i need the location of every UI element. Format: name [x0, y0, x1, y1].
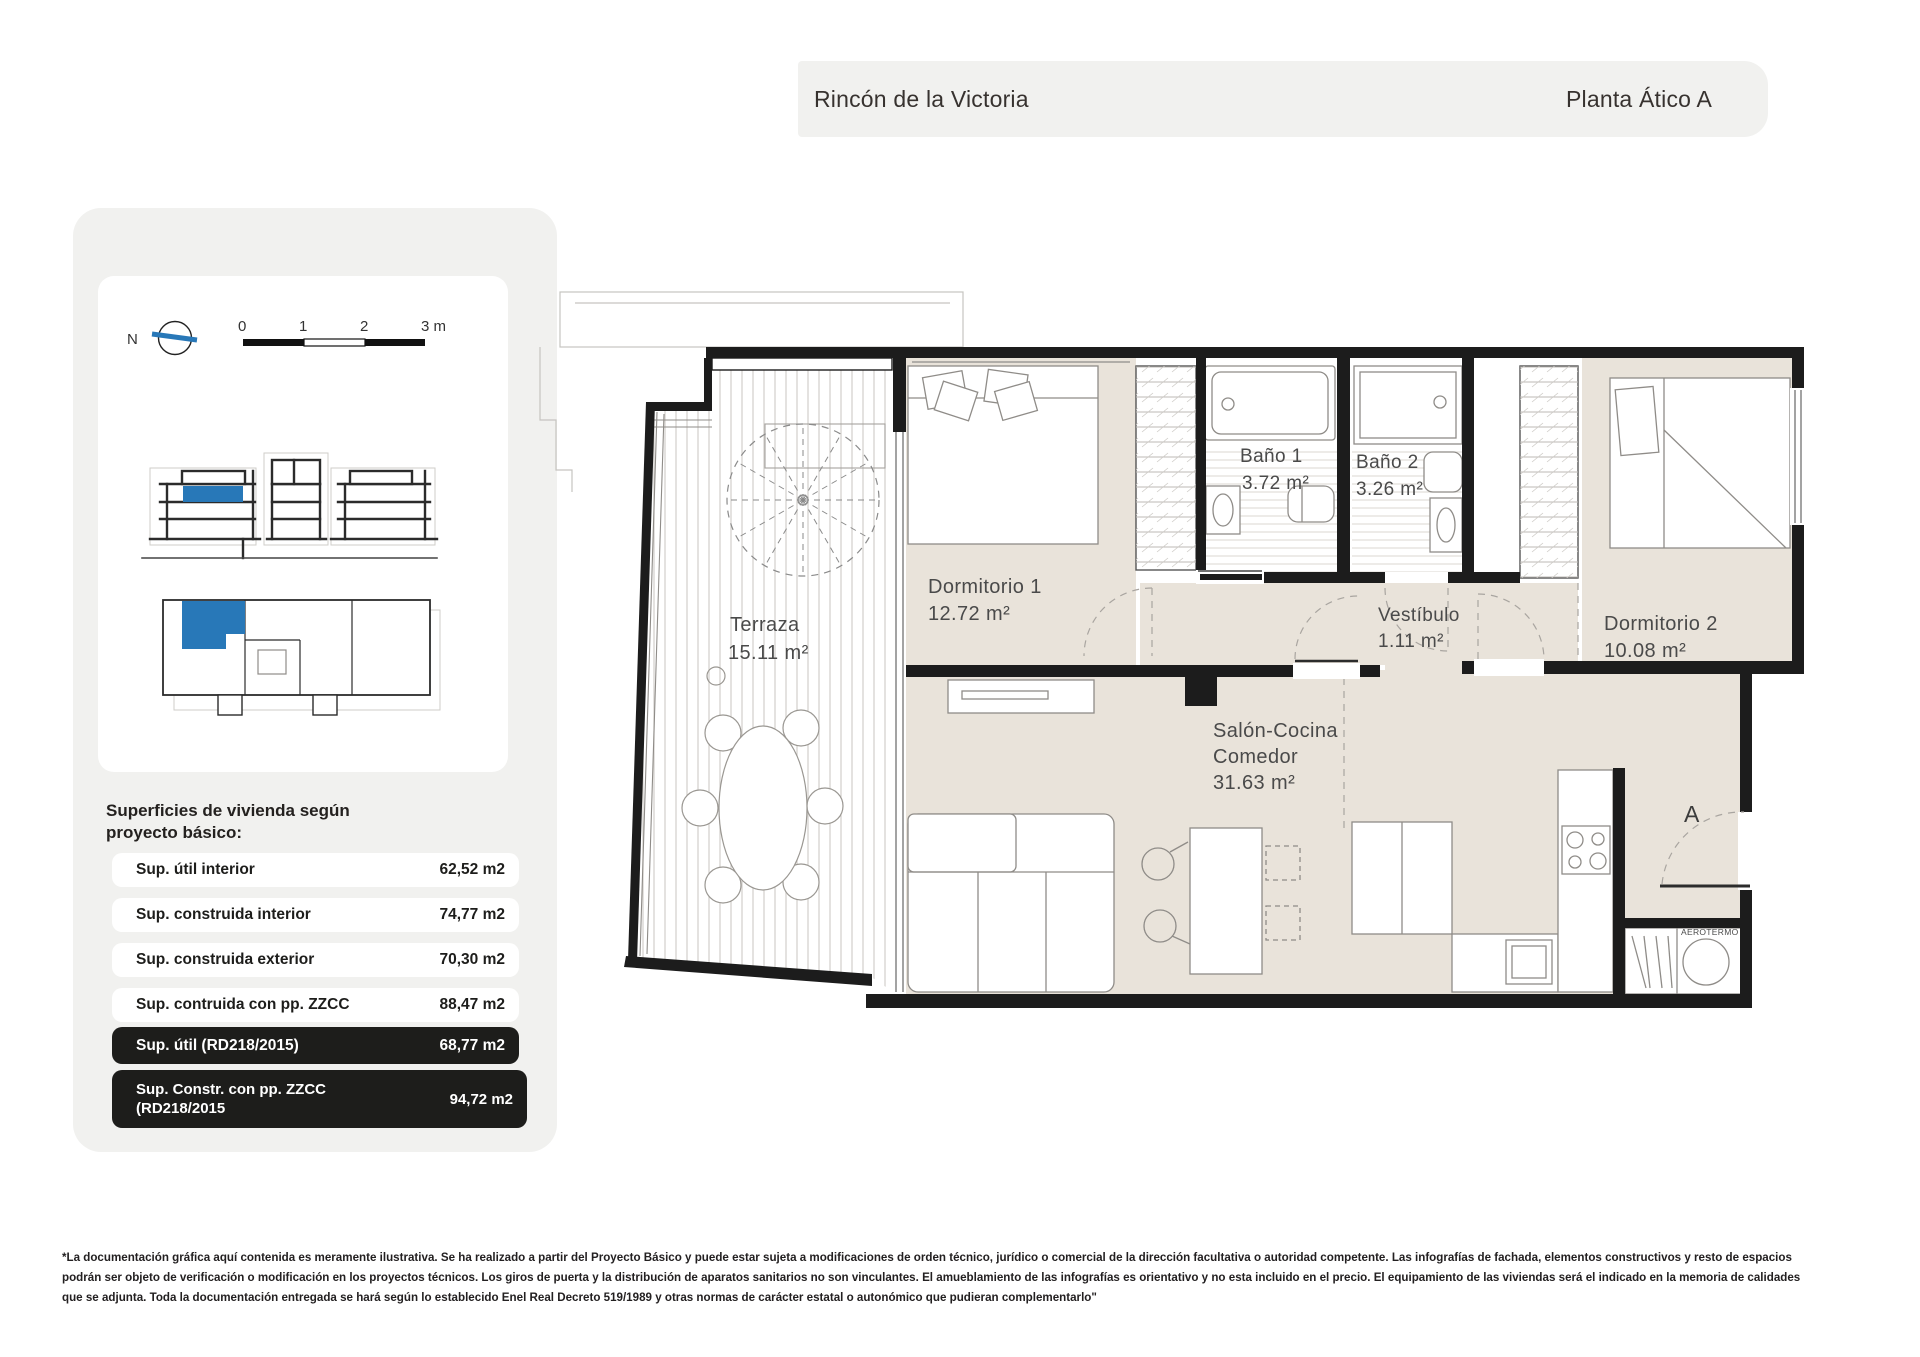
label-salon-line2: Comedor — [1213, 746, 1298, 768]
label-salon: Salón-Cocina — [1213, 720, 1338, 742]
sofa — [908, 814, 1114, 992]
disclaimer-line3: que se adjunta. Toda la documentación en… — [62, 1288, 1920, 1308]
dormitorio2-door-gap — [1474, 659, 1544, 676]
surface-row-label-line1: Sup. Constr. con pp. ZZCC — [136, 1081, 326, 1098]
surface-row-label-line2: (RD218/2015 — [136, 1100, 225, 1117]
floor-plan: Terraza 15.11 m² Dormitorio 1 12.72 m² B… — [525, 275, 1835, 1020]
dormitorio2-window — [1790, 388, 1806, 525]
surface-row-label: Sup. construida interior — [136, 906, 311, 924]
sink2-icon — [1430, 498, 1462, 552]
label-dormitorio1-area: 12.72 m² — [928, 603, 1010, 625]
label-bano1: Baño 1 — [1240, 446, 1303, 467]
terrace-glass-door — [893, 432, 906, 992]
compass-north-label: N — [127, 331, 138, 348]
header-bar: Rincón de la Victoria Planta Ático A — [798, 61, 1768, 137]
disclaimer: *La documentación gráfica aquí contenida… — [62, 1248, 1920, 1308]
label-bano1-area: 3.72 m² — [1242, 473, 1309, 494]
key-plan — [163, 600, 440, 715]
label-terraza: Terraza — [730, 614, 800, 636]
label-vestibulo-area: 1.11 m² — [1378, 631, 1444, 652]
surface-row-label: Sup. útil (RD218/2015) — [136, 1037, 299, 1055]
surface-row-value: 62,52 m2 — [440, 861, 506, 879]
label-vestibulo: Vestíbulo — [1378, 605, 1460, 626]
surface-row-util-rd218: Sup. útil (RD218/2015) 68,77 m2 — [112, 1027, 519, 1064]
bed-dormitorio2 — [1610, 378, 1790, 548]
shower-icon — [1354, 366, 1462, 444]
scale-seg-2 — [304, 339, 365, 346]
aerotermo-room — [1625, 928, 1742, 994]
disclaimer-line1: *La documentación gráfica aquí contenida… — [62, 1248, 1920, 1268]
surface-row-constr-rd218: Sup. Constr. con pp. ZZCC (RD218/2015 94… — [112, 1070, 527, 1128]
toilet2-icon — [1424, 452, 1462, 492]
surface-row-value: 88,47 m2 — [440, 996, 506, 1014]
surface-row-label: Sup. útil interior — [136, 861, 255, 879]
label-dormitorio1: Dormitorio 1 — [928, 576, 1042, 598]
label-bano2: Baño 2 — [1356, 452, 1419, 473]
bathtub-icon — [1205, 366, 1335, 440]
surface-row-value: 70,30 m2 — [440, 951, 506, 969]
label-terraza-area: 15.11 m² — [728, 642, 809, 664]
aerotermo-label: AEROTERMO — [1681, 927, 1739, 937]
surfaces-title-line1: Superficies de vivienda según — [106, 800, 466, 822]
surfaces-title-line2: proyecto básico: — [106, 822, 466, 844]
surface-row-construida-zzcc: Sup. contruida con pp. ZZCC 88,47 m2 — [112, 988, 519, 1022]
label-salon-area: 31.63 m² — [1213, 772, 1295, 794]
surface-row-value: 94,72 m2 — [450, 1091, 513, 1108]
bed-dormitorio1 — [908, 366, 1098, 544]
surface-row-label: Sup. contruida con pp. ZZCC — [136, 996, 350, 1014]
disclaimer-line2: podrán ser objeto de verificación o modi… — [62, 1268, 1920, 1288]
label-dormitorio2: Dormitorio 2 — [1604, 613, 1718, 635]
project-title: Rincón de la Victoria — [814, 86, 1029, 113]
label-bano2-area: 3.26 m² — [1356, 479, 1423, 500]
surfaces-title: Superficies de vivienda según proyecto b… — [106, 800, 466, 844]
hall-floor — [1140, 583, 1578, 665]
surface-row-construida-interior: Sup. construida interior 74,77 m2 — [112, 898, 519, 932]
outdoor-table — [719, 726, 807, 890]
entrance-letter: A — [1684, 801, 1700, 827]
locator-graphics: N 0 1 2 3 m — [98, 276, 508, 772]
label-dormitorio2-area: 10.08 m² — [1604, 640, 1686, 662]
compass: N — [127, 322, 197, 355]
tv-console — [948, 680, 1094, 713]
surface-row-util-interior: Sup. útil interior 62,52 m2 — [112, 853, 519, 887]
scale-seg-3 — [365, 339, 425, 346]
scale-seg-1 — [243, 339, 304, 346]
scale-bar: 0 1 2 3 m — [238, 318, 446, 346]
surface-row-value: 68,77 m2 — [440, 1037, 506, 1055]
scale-tick-0: 0 — [238, 318, 246, 335]
terrace-parapet — [712, 358, 892, 370]
scale-tick-2: 2 — [360, 318, 368, 335]
scale-tick-3: 3 m — [421, 318, 446, 335]
bano1-pocket-door — [1196, 570, 1264, 584]
hall-door — [1293, 661, 1360, 679]
scale-tick-1: 1 — [299, 318, 307, 335]
building-elevation — [142, 453, 437, 558]
highlighted-unit-elevation — [183, 486, 243, 502]
surface-row-label: Sup. construida exterior — [136, 951, 314, 969]
surface-row-label: Sup. Constr. con pp. ZZCC (RD218/2015 — [136, 1080, 326, 1118]
surface-row-construida-exterior: Sup. construida exterior 70,30 m2 — [112, 943, 519, 977]
sink1-icon — [1206, 486, 1240, 534]
surface-row-value: 74,77 m2 — [440, 906, 506, 924]
plan-title: Planta Ático A — [1566, 86, 1712, 113]
